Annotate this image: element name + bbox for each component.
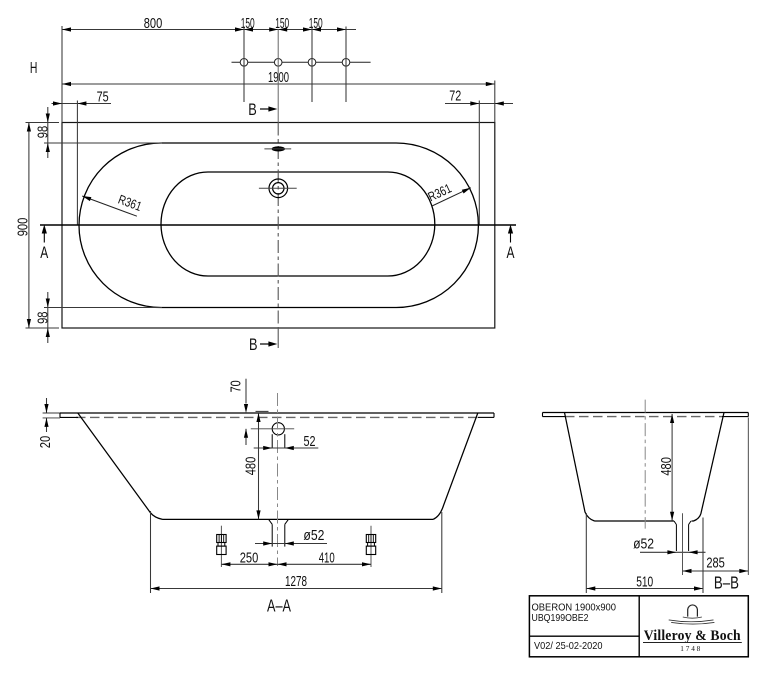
svg-text:B–B: B–B — [714, 573, 739, 593]
svg-text:20: 20 — [37, 436, 54, 449]
svg-text:510: 510 — [636, 574, 653, 591]
svg-text:B: B — [248, 100, 257, 119]
svg-text:A: A — [507, 244, 515, 262]
svg-text:V02/ 25-02-2020: V02/ 25-02-2020 — [534, 640, 603, 652]
svg-text:285: 285 — [706, 555, 725, 572]
svg-text:Villeroy & Boch: Villeroy & Boch — [644, 628, 741, 644]
svg-text:480: 480 — [242, 457, 259, 476]
svg-text:ø52: ø52 — [303, 527, 324, 544]
svg-text:1278: 1278 — [285, 573, 307, 590]
svg-text:52: 52 — [304, 433, 316, 450]
svg-text:250: 250 — [240, 549, 259, 566]
svg-text:410: 410 — [319, 549, 335, 566]
svg-text:75: 75 — [97, 88, 109, 105]
svg-text:800: 800 — [144, 15, 163, 32]
svg-text:B: B — [249, 335, 258, 354]
svg-text:70: 70 — [228, 380, 245, 392]
svg-text:72: 72 — [449, 88, 461, 105]
svg-text:98: 98 — [34, 312, 51, 324]
svg-text:480: 480 — [658, 457, 675, 476]
svg-text:ø52: ø52 — [633, 536, 654, 553]
svg-text:1 7 4 8: 1 7 4 8 — [680, 645, 701, 653]
svg-text:UBQ199OBE2: UBQ199OBE2 — [532, 612, 589, 624]
svg-text:H: H — [30, 60, 38, 77]
svg-text:98: 98 — [34, 126, 51, 138]
svg-text:150: 150 — [241, 15, 255, 32]
svg-text:150: 150 — [309, 15, 323, 32]
svg-text:900: 900 — [15, 218, 32, 237]
svg-text:A: A — [40, 244, 48, 262]
svg-text:150: 150 — [275, 15, 289, 32]
svg-text:A–A: A–A — [267, 595, 291, 615]
